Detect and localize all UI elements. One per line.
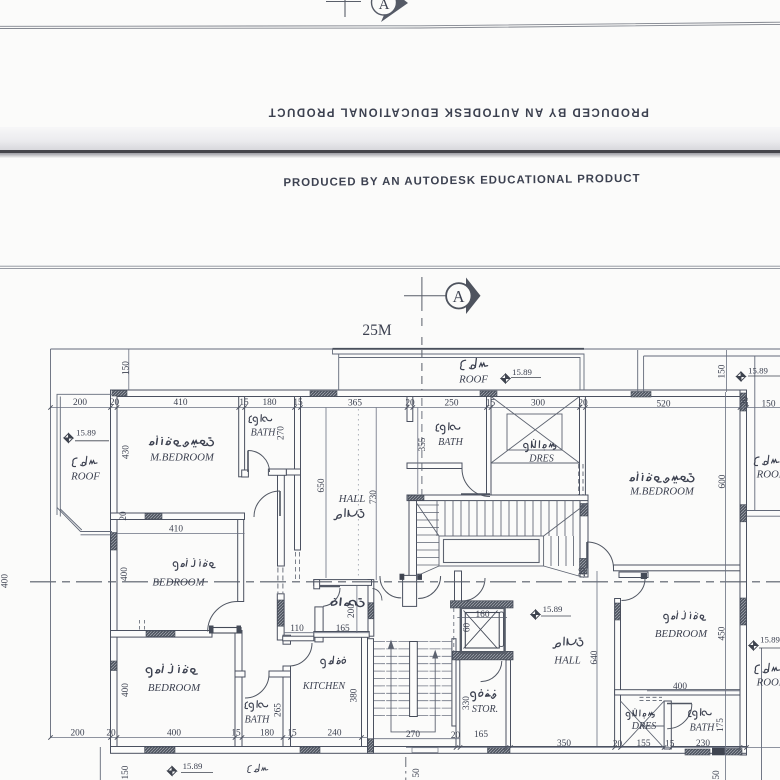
svg-text:20: 20	[451, 731, 461, 741]
svg-text:20: 20	[578, 567, 588, 577]
svg-text:180: 180	[263, 398, 277, 408]
svg-text:265: 265	[274, 703, 284, 717]
svg-text:BATH: BATH	[251, 428, 276, 439]
svg-text:165: 165	[336, 624, 350, 634]
svg-text:400: 400	[120, 567, 130, 581]
svg-text:KITCHEN: KITCHEN	[302, 681, 347, 692]
svg-text:730: 730	[369, 490, 379, 504]
svg-text:350: 350	[557, 739, 571, 749]
svg-text:400: 400	[121, 683, 131, 697]
svg-text:HALL: HALL	[338, 493, 365, 505]
svg-text:BEDROOM: BEDROOM	[655, 628, 708, 640]
svg-text:270: 270	[406, 730, 420, 740]
svg-text:20: 20	[106, 729, 116, 739]
svg-text:600: 600	[718, 474, 728, 488]
svg-text:20: 20	[578, 399, 588, 409]
svg-text:ROOF: ROOF	[756, 469, 780, 481]
svg-text:450: 450	[718, 626, 728, 640]
svg-text:PRODUCED BY AN AUTODESK EDUCAT: PRODUCED BY AN AUTODESK EDUCATIONAL PROD…	[267, 106, 649, 118]
svg-text:15: 15	[293, 398, 303, 408]
svg-text:DRES: DRES	[631, 721, 656, 732]
svg-text:20: 20	[119, 511, 129, 521]
svg-text:15.89: 15.89	[543, 604, 563, 614]
svg-text:50: 50	[712, 770, 722, 780]
svg-text:150: 150	[762, 400, 776, 410]
svg-text:110: 110	[290, 624, 304, 634]
svg-text:15.89: 15.89	[748, 366, 768, 376]
svg-text:150: 150	[718, 364, 728, 378]
svg-text:365: 365	[348, 399, 362, 409]
svg-text:A: A	[379, 0, 390, 13]
svg-text:20: 20	[741, 397, 751, 407]
svg-text:HALL: HALL	[553, 655, 580, 667]
svg-text:400: 400	[1, 574, 11, 588]
svg-text:STOR.: STOR.	[472, 704, 498, 715]
svg-text:15: 15	[231, 729, 241, 739]
svg-text:650: 650	[317, 478, 327, 492]
svg-text:640: 640	[590, 650, 600, 664]
svg-text:155: 155	[637, 739, 651, 749]
svg-text:160: 160	[476, 610, 490, 620]
svg-text:15.89: 15.89	[512, 367, 532, 377]
svg-text:15.89: 15.89	[760, 635, 780, 645]
svg-text:ROOF: ROOF	[458, 374, 488, 386]
svg-text:410: 410	[174, 398, 188, 408]
svg-text:410: 410	[169, 525, 183, 535]
svg-text:BATH: BATH	[245, 715, 270, 726]
svg-text:175: 175	[716, 718, 726, 732]
svg-text:230: 230	[696, 739, 710, 749]
svg-text:380: 380	[350, 688, 360, 702]
svg-text:180: 180	[260, 729, 274, 739]
svg-text:20: 20	[613, 740, 623, 750]
svg-text:520: 520	[657, 400, 671, 410]
svg-text:165: 165	[474, 730, 488, 740]
svg-text:20: 20	[110, 398, 120, 408]
svg-text:430: 430	[122, 445, 132, 459]
svg-text:15: 15	[665, 740, 675, 750]
svg-text:25M: 25M	[362, 322, 392, 339]
svg-text:400: 400	[167, 729, 181, 739]
svg-text:DRES: DRES	[528, 454, 553, 465]
svg-text:ROOF: ROOF	[70, 471, 100, 483]
svg-text:330: 330	[462, 696, 472, 710]
svg-text:ROOF: ROOF	[756, 677, 780, 689]
svg-text:50: 50	[412, 768, 422, 778]
svg-text:240: 240	[328, 729, 342, 739]
svg-text:M.BEDROOM: M.BEDROOM	[629, 486, 695, 498]
svg-text:200: 200	[73, 398, 87, 408]
svg-text:60: 60	[463, 623, 473, 633]
svg-text:15: 15	[239, 398, 249, 408]
svg-text:BATH: BATH	[690, 723, 715, 734]
svg-text:20: 20	[405, 399, 415, 409]
svg-text:200: 200	[71, 729, 85, 739]
svg-text:355: 355	[418, 437, 428, 451]
svg-text:A: A	[453, 287, 465, 306]
svg-text:M.BEDROOM: M.BEDROOM	[149, 452, 215, 464]
svg-text:BEDROOM: BEDROOM	[148, 682, 201, 694]
svg-text:270: 270	[277, 426, 287, 440]
svg-text:250: 250	[445, 399, 459, 409]
svg-text:300: 300	[531, 399, 545, 409]
svg-text:150: 150	[121, 765, 131, 779]
svg-text:150: 150	[121, 361, 131, 375]
svg-text:15.89: 15.89	[76, 428, 96, 438]
svg-text:15.89: 15.89	[183, 761, 203, 771]
svg-text:15: 15	[486, 399, 496, 409]
svg-text:BATH: BATH	[438, 437, 463, 448]
svg-text:400: 400	[673, 682, 687, 692]
svg-text:200: 200	[347, 604, 357, 618]
svg-text:BEDROOM: BEDROOM	[152, 577, 205, 589]
svg-text:15: 15	[287, 729, 297, 739]
